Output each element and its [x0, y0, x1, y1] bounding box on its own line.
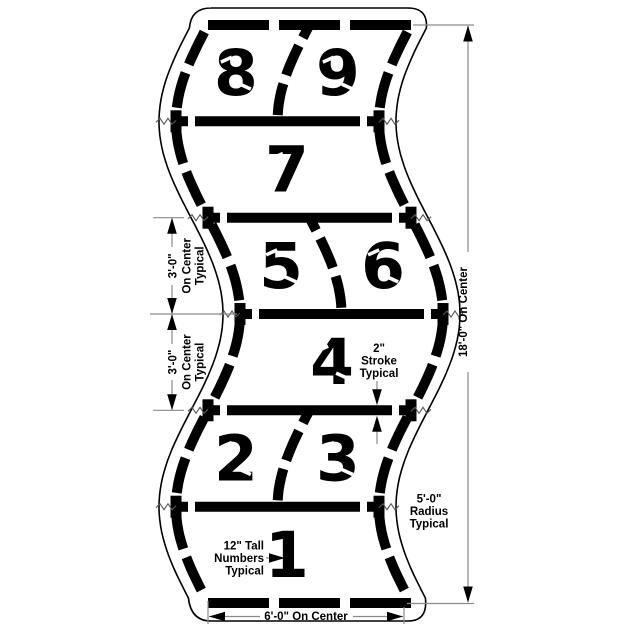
- cell-number-2: 2: [214, 423, 258, 496]
- cell-number-3: 3: [316, 423, 360, 496]
- dim-left-lower-value: 3'-0": [168, 350, 180, 375]
- dim-left-lower-label-2: Typical: [195, 343, 207, 382]
- cell-number-8: 8: [214, 37, 258, 110]
- dim-right-value: 18'-0" On Center: [458, 266, 470, 357]
- radius-note-line-3: Typical: [410, 519, 449, 531]
- radius-note-line-2: Radius: [410, 506, 448, 518]
- dim-left-upper-value: 3'-0": [168, 253, 180, 278]
- hopscotch-stencil-diagram: 897564231 3'-0" On Center Typical 3'-0" …: [0, 0, 632, 632]
- dim-left-upper-label-1: On Center: [182, 237, 194, 293]
- cell-number-5: 5: [259, 230, 303, 303]
- stroke-note-line-3: Typical: [360, 368, 399, 380]
- cell-number-9: 9: [316, 37, 360, 110]
- drawing-sheet: 897564231 3'-0" On Center Typical 3'-0" …: [0, 0, 632, 632]
- dim-left-lower-label-1: On Center: [182, 334, 194, 390]
- stroke-note-line-2: Stroke: [361, 356, 397, 368]
- dim-bottom-value: 6'-0" On Center: [264, 611, 348, 623]
- stroke-note-line-1: 2": [373, 343, 385, 355]
- cell-number-4: 4: [310, 326, 354, 399]
- cell-number-7: 7: [265, 134, 309, 207]
- numbers-note-line-1: 12" Tall: [224, 541, 264, 553]
- numbers-note-line-3: Typical: [225, 566, 264, 578]
- radius-note-line-1: 5'-0": [417, 494, 442, 506]
- numbers-note-line-2: Numbers: [214, 553, 264, 565]
- cell-number-6: 6: [361, 230, 405, 303]
- dim-left-upper-label-2: Typical: [195, 246, 207, 285]
